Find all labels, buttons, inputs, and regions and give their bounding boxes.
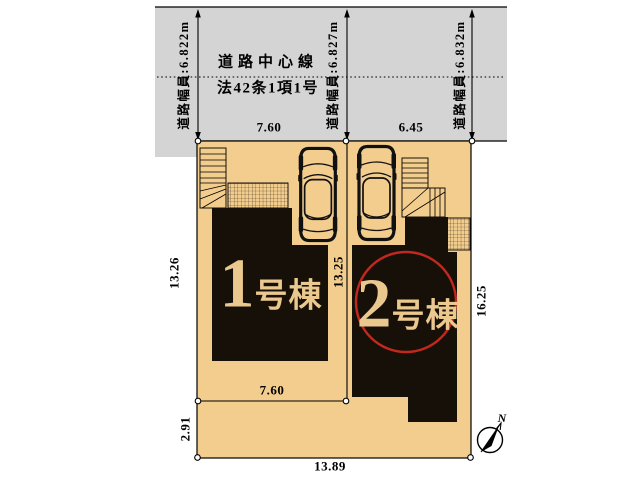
road-law-reference-label: 法42条1項1号 — [217, 82, 319, 97]
site-plan: 道路中心線 法42条1項1号 道路幅員:6.822m 道路幅員:6.827m 道… — [0, 0, 640, 480]
building-2-label[interactable]: 2号棟 — [357, 274, 460, 334]
dim-top-lot2-width: 6.45 — [399, 121, 424, 134]
road-width-label-left: 道路幅員:6.822m — [178, 20, 191, 129]
dim-bottom-total-width: 13.89 — [314, 460, 346, 473]
building-2-suffix: 号棟 — [392, 302, 460, 332]
dim-lot1-bottom-width: 7.60 — [260, 384, 285, 397]
building-1-label[interactable]: 1号棟 — [220, 254, 323, 314]
road-width-label-middle: 道路幅員:6.827m — [327, 20, 340, 129]
building-1-suffix: 号棟 — [255, 282, 323, 312]
stairs-lot1 — [200, 148, 226, 208]
dim-lot2-right-depth: 16.25 — [475, 285, 488, 317]
site-plan-drawing — [0, 0, 640, 480]
compass-icon — [478, 423, 503, 453]
dim-top-lot1-width: 7.60 — [257, 121, 282, 134]
road-center-line-label: 道路中心線 — [218, 56, 318, 71]
building-2-number: 2 — [357, 274, 392, 334]
compass-north-label: N — [498, 412, 507, 424]
entry-hatch-lot1 — [228, 183, 288, 208]
road-width-label-right: 道路幅員:6.832m — [454, 20, 467, 129]
building-1-number: 1 — [220, 254, 255, 314]
dim-bottom-left-depth: 2.91 — [179, 417, 192, 442]
dim-lot1-left-depth: 13.26 — [168, 257, 181, 289]
entry-hatch-lot2 — [445, 218, 470, 250]
dim-lot-divider-depth: 13.25 — [332, 256, 345, 288]
